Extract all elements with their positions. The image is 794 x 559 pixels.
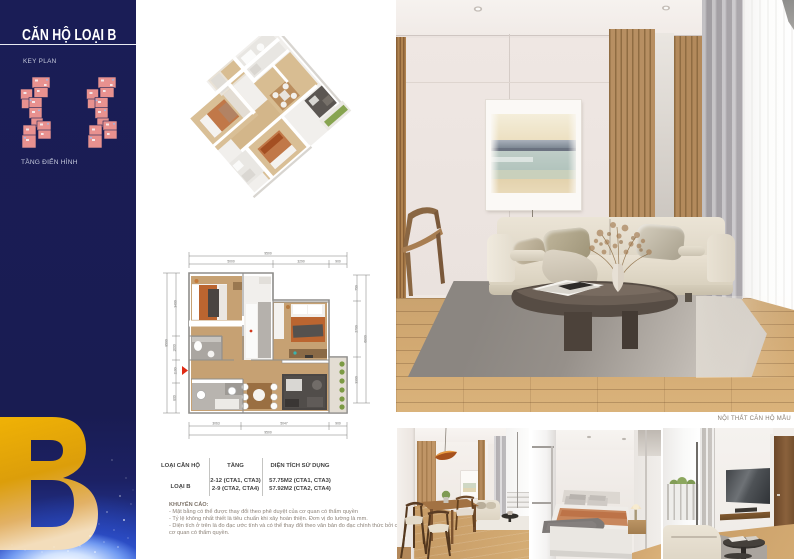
svg-text:1600: 1600 bbox=[173, 344, 177, 352]
svg-text:900: 900 bbox=[335, 260, 341, 264]
svg-text:9500: 9500 bbox=[264, 431, 272, 435]
svg-text:3063: 3063 bbox=[212, 422, 220, 426]
svg-text:800: 800 bbox=[173, 395, 177, 401]
svg-text:9500: 9500 bbox=[264, 252, 272, 256]
svg-text:2700: 2700 bbox=[355, 325, 359, 333]
svg-text:5047: 5047 bbox=[280, 422, 288, 426]
svg-text:3400: 3400 bbox=[174, 300, 178, 308]
svg-text:3300: 3300 bbox=[355, 376, 359, 384]
svg-text:3290: 3290 bbox=[297, 260, 305, 264]
svg-text:8500: 8500 bbox=[165, 339, 169, 347]
svg-text:6800: 6800 bbox=[364, 335, 368, 343]
svg-text:750: 750 bbox=[355, 285, 359, 291]
svg-text:900: 900 bbox=[335, 422, 341, 426]
svg-text:5000: 5000 bbox=[227, 260, 235, 264]
svg-text:1100: 1100 bbox=[174, 367, 178, 374]
